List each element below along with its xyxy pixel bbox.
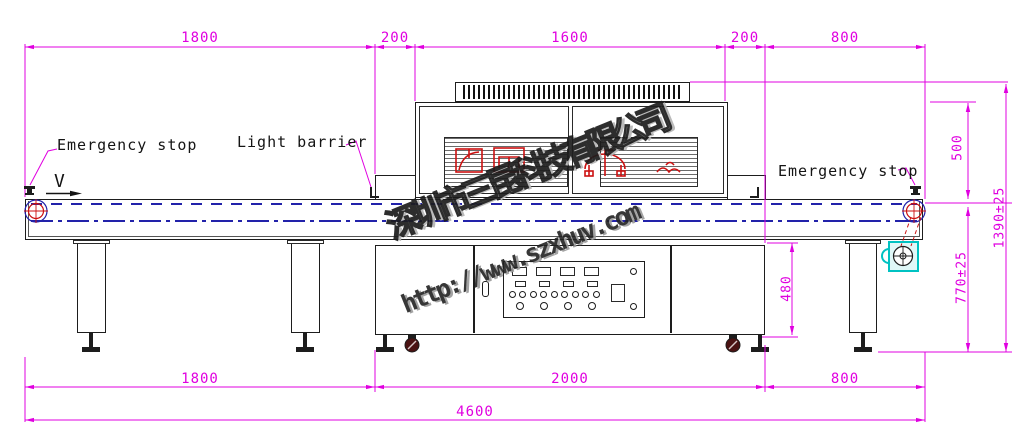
dimension-arrowheads	[25, 45, 1008, 422]
dim-right-500: 500	[951, 128, 966, 168]
dim-overall-4600: 4600	[25, 404, 925, 420]
dim-top-1600: 1600	[415, 30, 725, 46]
dim-bottom-800: 800	[765, 371, 925, 387]
label-emergency-stop-right: Emergency stop	[778, 162, 918, 180]
label-light-barrier: Light barrier	[237, 133, 367, 151]
caster-wheel	[405, 335, 740, 352]
dim-top-1800: 1800	[25, 30, 375, 46]
label-direction-v: V	[54, 171, 66, 192]
dim-cabinet-480: 480	[780, 269, 795, 309]
uv-conveyor-engineering-drawing: Emergency stop Light barrier Emergency s…	[0, 0, 1023, 433]
label-emergency-stop-left: Emergency stop	[57, 136, 197, 154]
dim-right-770: 770±25	[955, 244, 970, 312]
dim-top-800: 800	[765, 30, 925, 46]
motor-gear-symbol	[893, 246, 913, 266]
dim-bottom-2000: 2000	[375, 371, 765, 387]
dim-right-1390: 1390±25	[993, 176, 1008, 260]
dim-bottom-1800: 1800	[25, 371, 375, 387]
dimension-overlay	[0, 0, 1023, 433]
